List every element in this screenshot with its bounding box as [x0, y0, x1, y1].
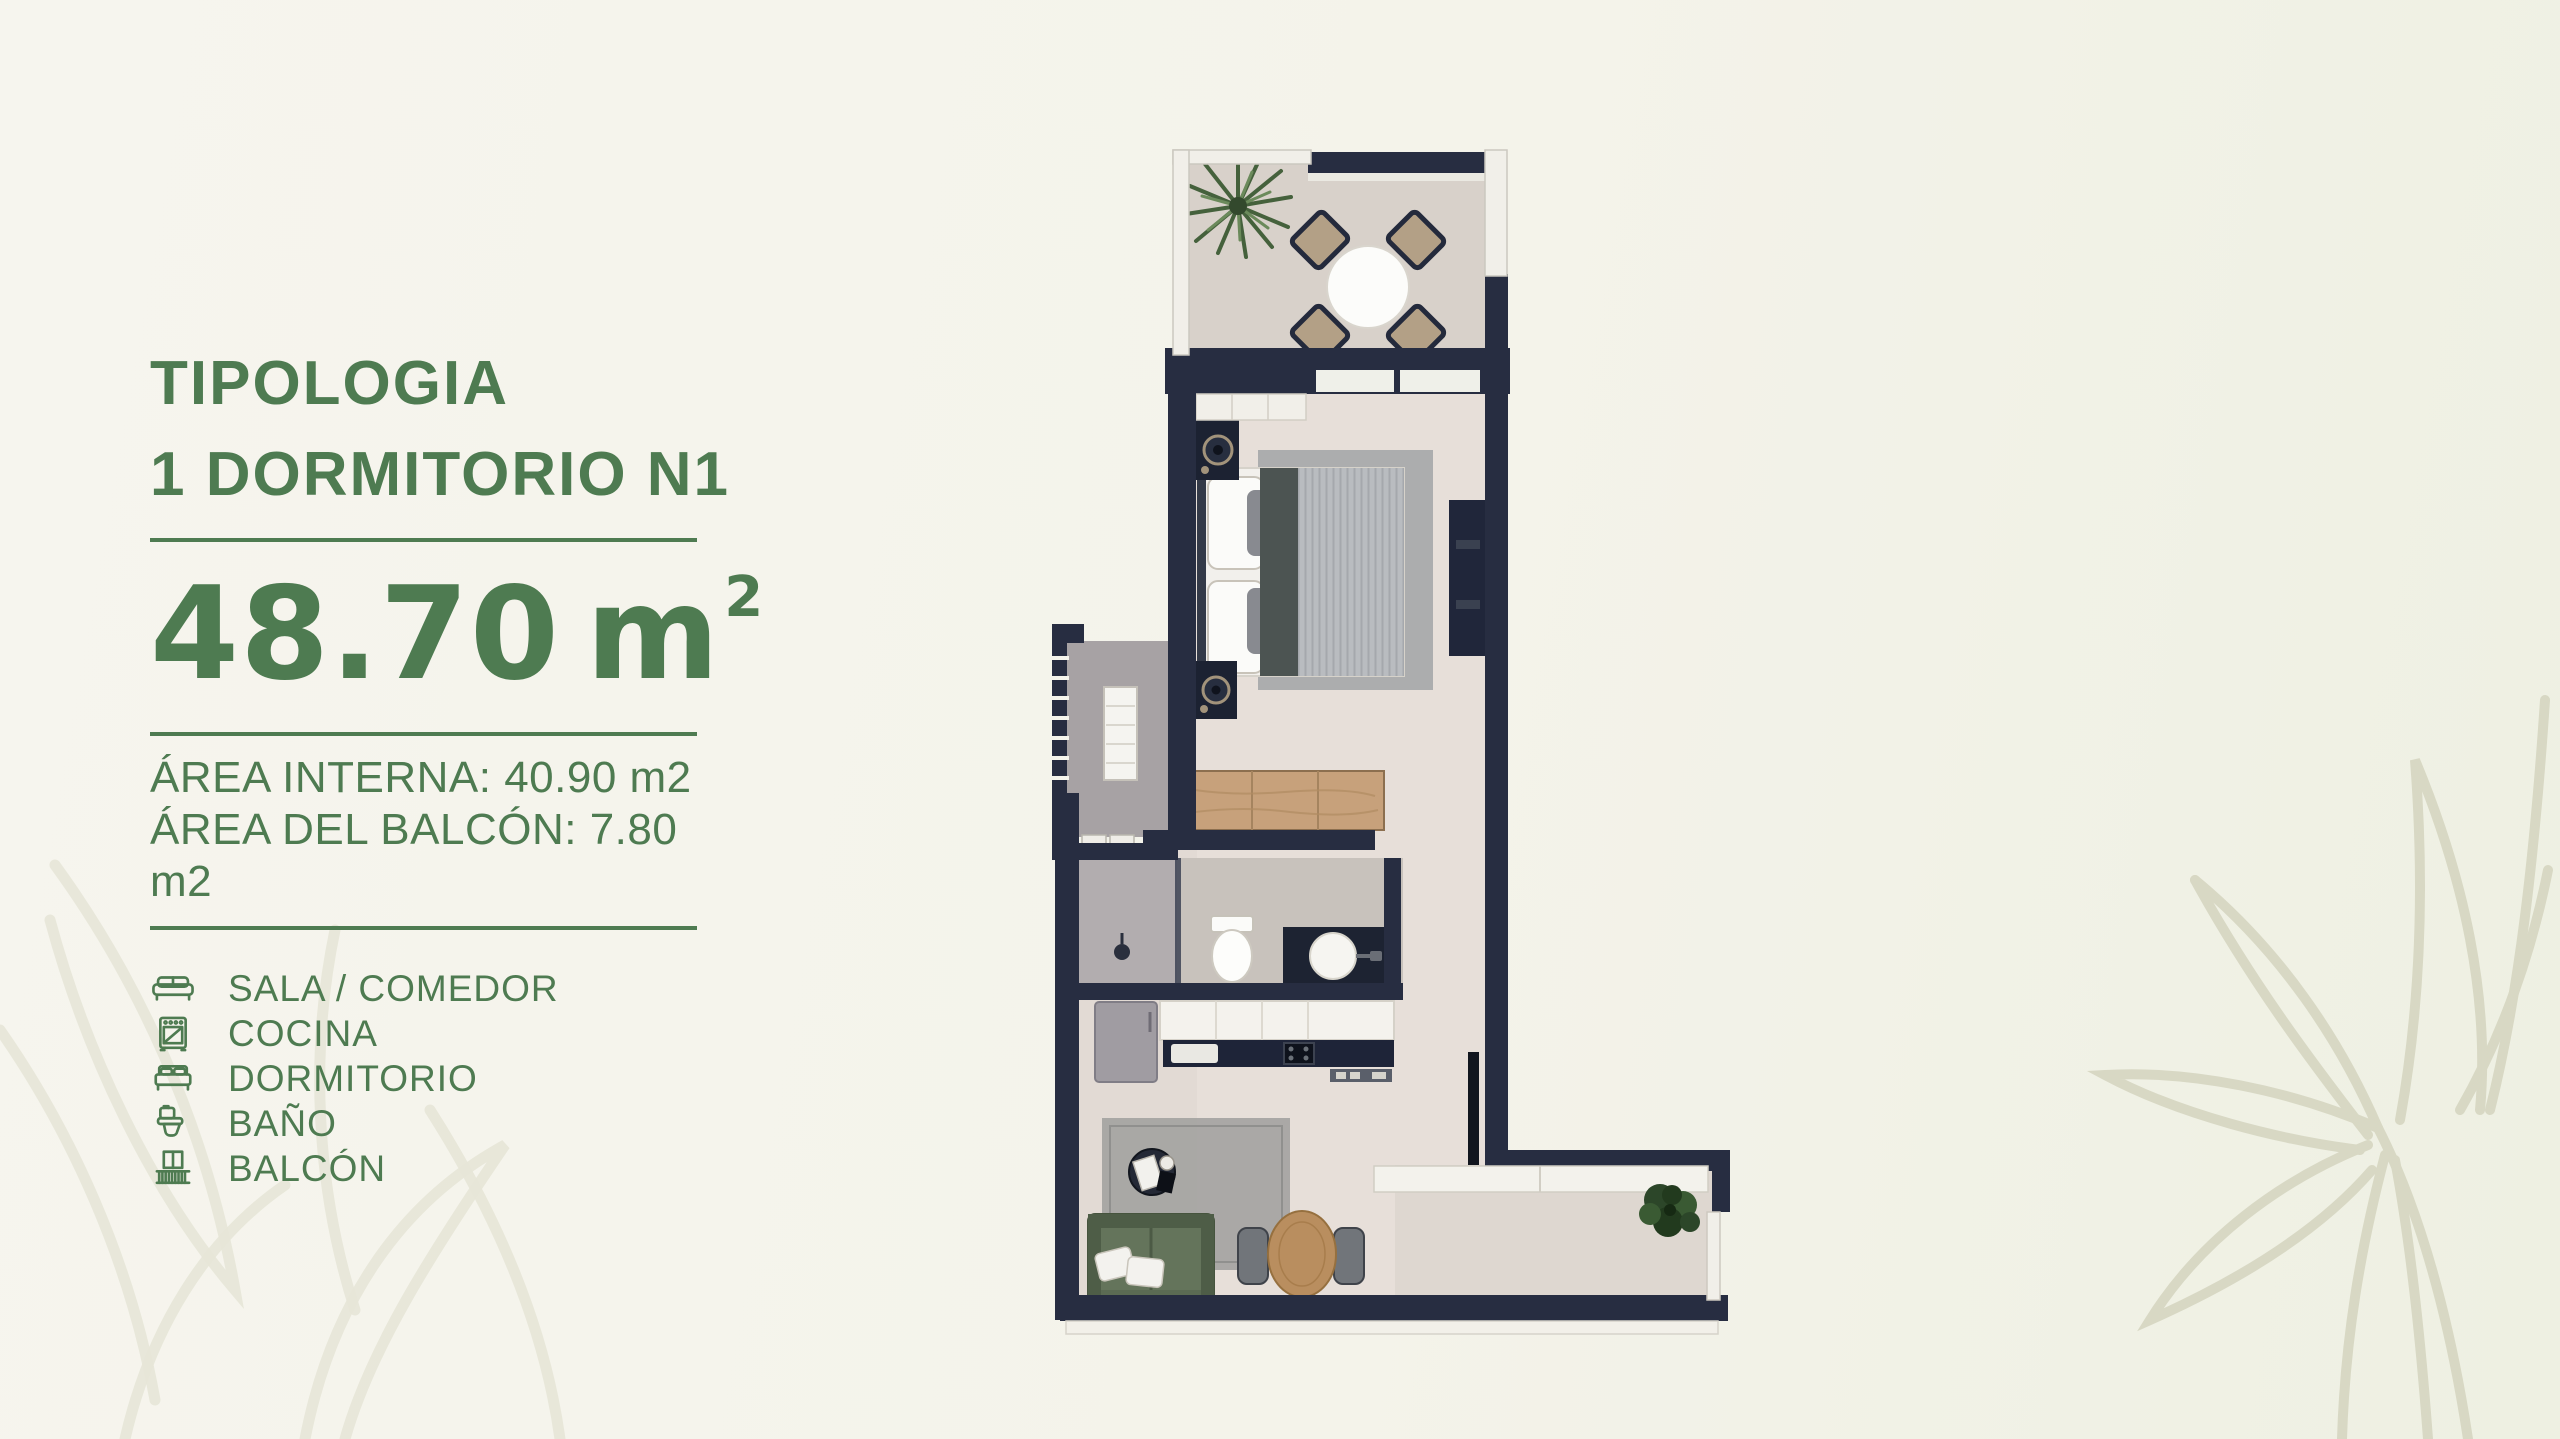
- legend-item-bano: BAÑO: [150, 1101, 750, 1146]
- area-details: ÁREA INTERNA: 40.90 m2 ÁREA DEL BALCÓN: …: [150, 752, 750, 908]
- legend-label: BALCÓN: [228, 1148, 386, 1190]
- cooktop: [1284, 1043, 1314, 1064]
- page-title: TIPOLOGIA 1 DORMITORIO N1: [150, 338, 750, 520]
- toilet-icon: [150, 1104, 196, 1144]
- legend-item-balcon: BALCÓN: [150, 1146, 750, 1191]
- total-area: 48.70m2: [150, 568, 750, 702]
- washer-cabinet-bottom: [1196, 661, 1237, 719]
- page: { "panel": { "accent_color": "#4e7b51", …: [0, 0, 2560, 1439]
- total-area-exponent: 2: [724, 565, 764, 630]
- floor-plan: [1040, 140, 1740, 1352]
- area-balcon-line: ÁREA DEL BALCÓN: 7.80 m2: [150, 804, 750, 908]
- legend-label: BAÑO: [228, 1103, 337, 1145]
- wall-tv: [1468, 1052, 1479, 1165]
- info-panel: TIPOLOGIA 1 DORMITORIO N1 48.70m2 ÁREA I…: [150, 338, 750, 1191]
- leaf-lines-right: [2105, 700, 2548, 1439]
- legend-item-sala-comedor: SALA / COMEDOR: [150, 966, 750, 1011]
- tv-console: [1449, 500, 1486, 656]
- kitchen-sink: [1171, 1044, 1218, 1063]
- divider: [150, 732, 697, 736]
- bed: [1197, 466, 1404, 678]
- sofa-icon: [150, 969, 196, 1009]
- glass-balustrade-bottom: [1066, 1321, 1718, 1334]
- fridge: [1095, 1002, 1157, 1082]
- sofa: [1088, 1214, 1214, 1302]
- title-line-1: TIPOLOGIA: [150, 338, 750, 429]
- area-interna-line: ÁREA INTERNA: 40.90 m2: [150, 752, 750, 804]
- legend-item-cocina: COCINA: [150, 1011, 750, 1056]
- title-line-2: 1 DORMITORIO N1: [150, 429, 750, 520]
- washer-cabinet-top: [1196, 420, 1239, 480]
- total-area-value: 48.70: [150, 560, 560, 709]
- legend-label: COCINA: [228, 1013, 378, 1055]
- balcony-icon: [150, 1149, 196, 1189]
- glass-balustrade-right: [1707, 1212, 1720, 1300]
- vanity-basin: [1310, 933, 1356, 979]
- divider: [150, 538, 697, 542]
- divider: [150, 926, 697, 930]
- legend: SALA / COMEDOR COCINA: [150, 966, 750, 1191]
- total-area-unit: m: [586, 560, 720, 709]
- legend-label: SALA / COMEDOR: [228, 968, 559, 1010]
- legend-item-dormitorio: DORMITORIO: [150, 1056, 750, 1101]
- wood-dresser: [1187, 771, 1384, 830]
- legend-label: DORMITORIO: [228, 1058, 478, 1100]
- coffee-table: [1129, 1149, 1176, 1195]
- bed-icon: [150, 1059, 196, 1099]
- stove-icon: [150, 1014, 196, 1054]
- toilet-bowl: [1212, 930, 1252, 982]
